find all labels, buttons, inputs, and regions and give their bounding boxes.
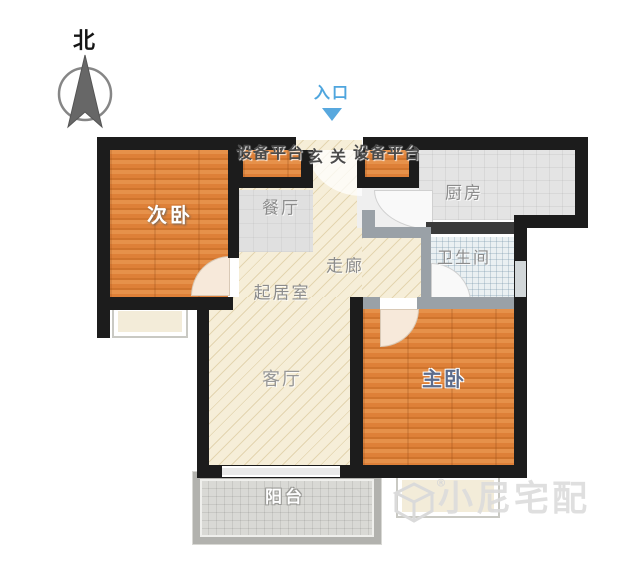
label-secondary-bedroom: 次卧 — [147, 205, 193, 225]
wall-kitchen-bottom-step — [520, 215, 582, 228]
balcony-structure — [193, 472, 381, 544]
compass-icon — [55, 52, 117, 130]
wall-bathroom-top — [426, 222, 514, 234]
floorplan-canvas: 北 入口 设备平台 玄关 — [0, 0, 640, 587]
wall-secondary-bedroom-bottom — [107, 297, 233, 310]
wall-master-top-left — [363, 297, 380, 309]
label-balcony: 阳台 — [265, 490, 305, 507]
floor-corridor-south — [362, 238, 422, 298]
label-equipment-platform-right: 设备平台 — [353, 145, 421, 161]
floor-kitchen — [419, 150, 575, 220]
watermark-brand: 小尼宅配 — [438, 483, 590, 518]
entrance-label: 入口 — [314, 85, 350, 101]
label-kitchen: 厨房 — [445, 186, 483, 203]
label-equipment-platform-left: 设备平台 — [236, 145, 304, 161]
label-entry-hall: 玄关 — [307, 149, 353, 165]
window-living-balcony — [222, 466, 340, 477]
entrance-arrow-icon — [322, 108, 342, 121]
window-bathroom-right — [515, 261, 526, 297]
label-living-room: 客厅 — [262, 371, 302, 389]
wall-living-master-divider — [350, 297, 363, 478]
label-master-bedroom: 主卧 — [422, 369, 466, 389]
label-living-area: 起居室 — [254, 286, 311, 303]
wall-living-left — [197, 297, 209, 478]
label-corridor: 走廊 — [326, 259, 364, 276]
wall-master-bottom — [377, 465, 527, 478]
watermark-logo-icon — [390, 478, 438, 526]
label-bathroom: 卫生间 — [437, 250, 491, 266]
north-label: 北 — [73, 31, 95, 53]
wall-bathroom-left — [421, 237, 431, 302]
label-dining-room: 餐厅 — [262, 201, 300, 218]
wall-right-outer — [514, 215, 527, 478]
wall-master-top-right — [417, 297, 514, 309]
